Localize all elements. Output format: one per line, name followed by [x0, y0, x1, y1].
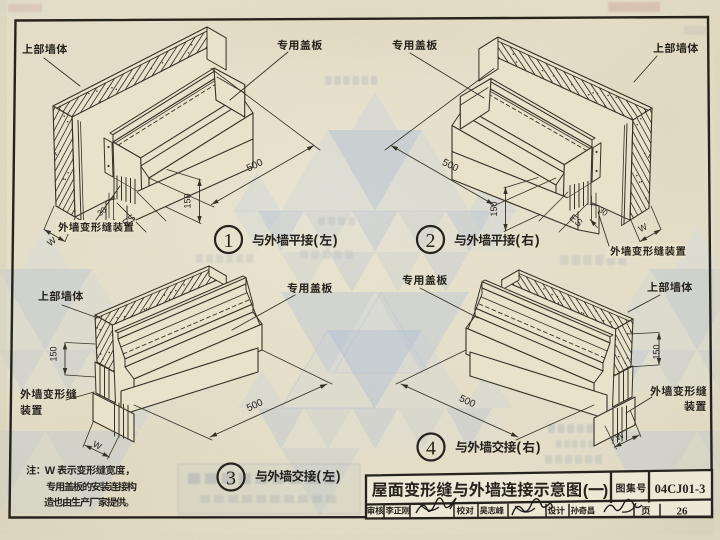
svg-text:(: (: [317, 469, 322, 484]
svg-text:(: (: [517, 440, 522, 455]
svg-text:): ): [535, 233, 540, 248]
svg-text:(: (: [314, 233, 319, 248]
svg-text:4: 4: [426, 437, 436, 459]
svg-text:150: 150: [49, 346, 59, 361]
svg-text:W: W: [45, 465, 56, 477]
svg-text:150: 150: [489, 201, 499, 216]
svg-text:): ): [333, 233, 338, 248]
svg-text:150: 150: [652, 344, 662, 359]
svg-text:): ): [536, 440, 541, 455]
svg-text:1: 1: [224, 230, 234, 252]
svg-text:): ): [336, 469, 341, 484]
svg-text:(: (: [516, 233, 521, 248]
svg-text:04CJ01-3: 04CJ01-3: [655, 482, 706, 496]
svg-text:): ): [603, 483, 608, 500]
svg-text:150: 150: [183, 193, 193, 208]
svg-text:2: 2: [426, 230, 436, 252]
svg-text:(: (: [583, 483, 589, 500]
svg-text:3: 3: [226, 467, 236, 489]
svg-text:26: 26: [677, 506, 689, 518]
